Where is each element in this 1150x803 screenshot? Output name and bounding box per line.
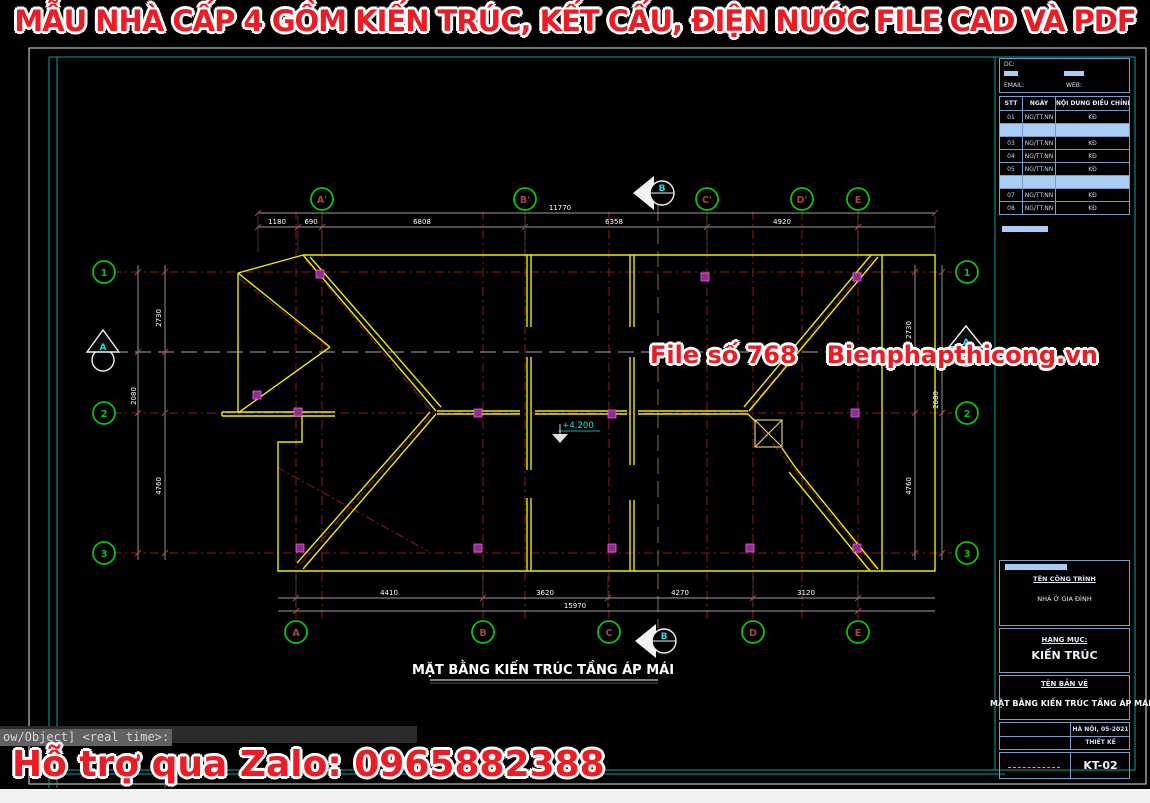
grid-bubble-left-2: 2	[101, 409, 108, 420]
level-marker: +4.200	[552, 421, 600, 443]
plan-title-text: MẶT BẰNG KIẾN TRÚC TẦNG ÁP MÁI	[412, 660, 674, 678]
dim-bottom-seg-2: 4270	[671, 589, 689, 597]
dim-bottom-seg-1: 3620	[536, 589, 554, 597]
dim-right-seg-2: 4760	[905, 477, 913, 495]
section-markers: B B A A	[87, 176, 983, 658]
section-marker-left-a: A	[87, 330, 119, 371]
date-box: HÀ NỘI, 05-2021 THIẾT KẾ	[999, 722, 1130, 750]
grid-bubble-right-3: 3	[964, 549, 971, 560]
svg-text:B: B	[661, 632, 668, 642]
svg-text:B: B	[659, 184, 666, 194]
grid-bubble-bottom-e: E	[855, 628, 862, 639]
grid-bubble-top-c: C'	[702, 195, 712, 206]
grid-bubble-top-b: B'	[520, 195, 530, 206]
revision-row: 05 NG/TT.NN KĐ	[1000, 163, 1130, 176]
project-name: NHÀ Ở GIA ĐÌNH	[1000, 595, 1129, 603]
col-ngay: NGÀY	[1023, 97, 1056, 111]
grid-bubble-top-d: D'	[797, 195, 808, 206]
dim-top-seg-0: 1180	[268, 218, 286, 226]
category-label: HẠNG MỤC:	[1000, 636, 1129, 644]
watermark-site: Bienphapthicong.vn	[827, 341, 1098, 369]
project-label: TÊN CÔNG TRÌNH	[1000, 575, 1129, 583]
dim-left-seg-0: 2730	[155, 309, 163, 327]
web-label: WEB:	[1066, 82, 1082, 89]
revision-row: 07 NG/TT.NN KĐ	[1000, 189, 1130, 202]
dim-bottom-overall: 15970	[564, 602, 586, 610]
sheet-label: TÊN BẢN VẼ	[1000, 680, 1129, 688]
svg-text:A: A	[100, 343, 107, 353]
project-box: TÊN CÔNG TRÌNH NHÀ Ở GIA ĐÌNH	[999, 560, 1130, 626]
grid-bubble-bottom-c: C	[606, 628, 613, 639]
section-marker-top-b: B	[633, 176, 674, 210]
grid-bubble-right-1: 1	[964, 268, 971, 279]
grid-bubble-bottom-b: B	[479, 628, 486, 639]
sheet-number: KT-02	[1070, 753, 1130, 778]
sheet-name-box: TÊN BẢN VẼ MẶT BẰNG KIẾN TRÚC TẦNG ÁP MÁ…	[999, 675, 1130, 720]
roof-shaft-marker	[755, 420, 782, 447]
signature-line	[1008, 767, 1060, 768]
revision-row: 03 NG/TT.NN KĐ	[1000, 137, 1130, 150]
revision-row: 08 NG/TT.NN KĐ	[1000, 202, 1130, 215]
dim-right-seg-1: 2080	[932, 391, 940, 409]
revision-row: 01 NG/TT.NN KĐ	[1000, 111, 1130, 124]
dim-top-seg-2: 6808	[413, 218, 431, 226]
revision-row-selected: 02 NG/TT.NN KĐ	[1000, 124, 1130, 137]
dim-right-seg-0: 2730	[905, 321, 913, 339]
grid-bubble-left-3: 3	[101, 549, 108, 560]
dc-value-highlight	[1004, 71, 1018, 76]
cad-model-canvas[interactable]: 11770 1180 690 6808 6358 4920 4410 3620 …	[0, 0, 1150, 803]
email-label: EMAIL:	[1004, 82, 1024, 89]
plan-title: MẶT BẰNG KIẾN TRÚC TẦNG ÁP MÁI	[412, 660, 674, 683]
selected-text-highlight	[1002, 226, 1048, 232]
ad-banner-title: MẪU NHÀ CẤP 4 GỒM KIẾN TRÚC, KẾT CẤU, ĐI…	[0, 4, 1150, 38]
dc-label: DC:	[1004, 61, 1015, 68]
dim-top-seg-1: 690	[304, 218, 317, 226]
command-line-bar[interactable]: ow/Object] <real time>:	[0, 726, 417, 743]
zalo-support-text: Hỗ trợ qua Zalo: 0965882388	[12, 744, 605, 785]
sheet-name: MẶT BẰNG KIẾN TRÚC TẦNG ÁP MÁI	[990, 699, 1140, 708]
place-date: HÀ NỘI, 05-2021	[1070, 723, 1130, 737]
dim-bottom-seg-0: 4410	[380, 589, 398, 597]
grid-bubble-top-e: E	[855, 195, 862, 206]
section-marker-bottom-b: B	[635, 624, 676, 658]
col-stt: STT	[1000, 97, 1023, 111]
dim-top-overall: 11770	[549, 204, 571, 212]
phone-value-highlight	[1064, 71, 1084, 76]
revision-row: 04 NG/TT.NN KĐ	[1000, 150, 1130, 163]
watermark-file-number: File số 768	[650, 341, 797, 369]
grid-bubble-bottom-d: D	[749, 628, 757, 639]
sheet-number-box: KT-02	[999, 752, 1130, 779]
grid-bubble-left-1: 1	[101, 268, 108, 279]
revision-table: STT NGÀY NỘI DUNG ĐIỀU CHỈNH 01 NG/TT.NN…	[999, 96, 1130, 215]
title-block: DC: EMAIL: WEB: STT NGÀY NỘI DUNG ĐIỀU C…	[997, 57, 1134, 777]
stage-label: THIẾT KẾ	[1070, 736, 1130, 749]
category-value: KIẾN TRÚC	[1000, 649, 1129, 662]
dim-top-seg-3: 6358	[605, 218, 623, 226]
dim-top-seg-4: 4920	[773, 218, 791, 226]
bottom-white-strip	[0, 789, 1150, 803]
dim-left-seg-1: 2080	[130, 387, 138, 405]
selected-text-highlight	[1005, 564, 1067, 570]
grid-bubble-bottom-a: A	[292, 628, 300, 639]
category-box: HẠNG MỤC: KIẾN TRÚC	[999, 628, 1130, 673]
level-label: +4.200	[562, 421, 593, 431]
revision-row-selected: 06 NG/TT.NN KĐ	[1000, 176, 1130, 189]
dim-bottom-seg-3: 3120	[797, 589, 815, 597]
col-noidung: NỘI DUNG ĐIỀU CHỈNH	[1056, 97, 1130, 111]
grid-bubble-top-a: A'	[317, 195, 327, 206]
dim-left-seg-2: 4760	[155, 477, 163, 495]
contact-box: DC: EMAIL: WEB:	[999, 58, 1130, 93]
watermark: File số 768Bienphapthicong.vn	[650, 341, 1098, 369]
grid-bubble-right-2: 2	[964, 409, 971, 420]
revision-header-row: STT NGÀY NỘI DUNG ĐIỀU CHỈNH	[1000, 97, 1130, 111]
divider	[1000, 736, 1070, 737]
